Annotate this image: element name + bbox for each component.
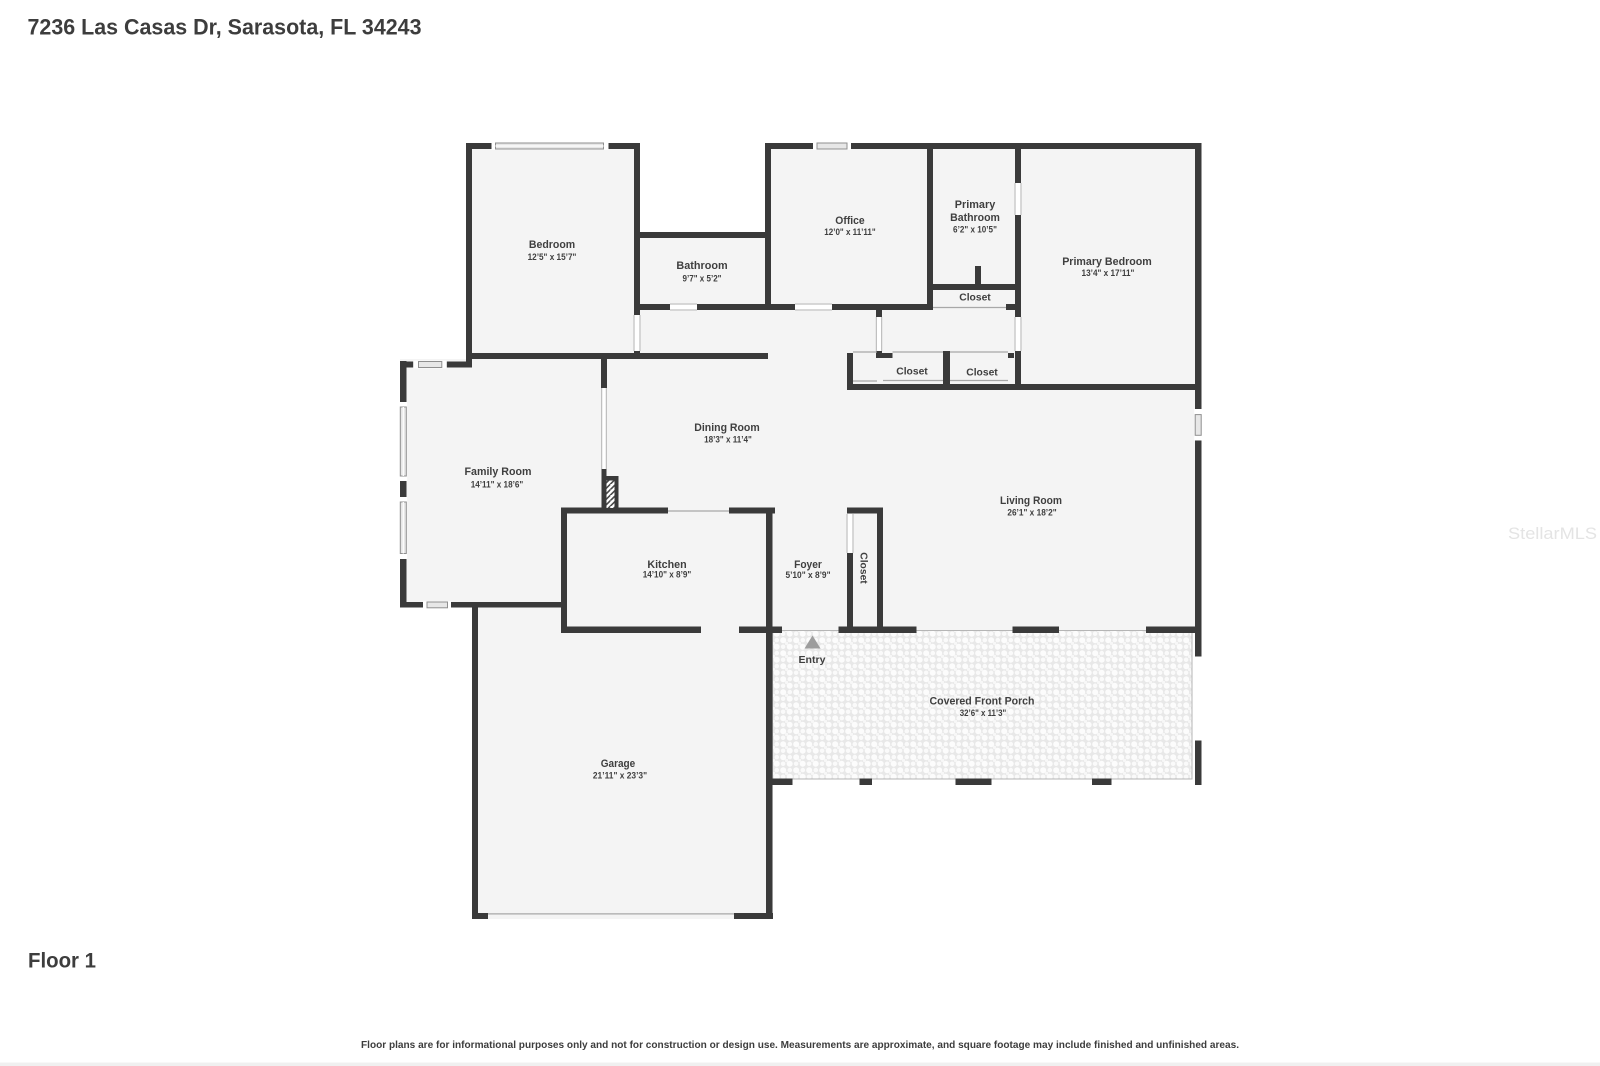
svg-text:Primary: Primary (955, 199, 996, 211)
svg-text:14’11" x 18’6": 14’11" x 18’6" (471, 479, 524, 490)
svg-text:Bathroom: Bathroom (950, 212, 1000, 224)
svg-text:Bathroom: Bathroom (676, 260, 727, 272)
svg-text:Closet: Closet (858, 552, 869, 584)
svg-text:Closet: Closet (966, 367, 998, 378)
svg-text:Living Room: Living Room (1000, 495, 1062, 507)
svg-text:21’11" x 23’3": 21’11" x 23’3" (593, 770, 647, 781)
svg-text:Bedroom: Bedroom (529, 239, 576, 251)
svg-text:Dining Room: Dining Room (694, 422, 760, 434)
svg-text:32’6" x 11’3": 32’6" x 11’3" (960, 708, 1007, 719)
svg-text:26’1" x 18’2": 26’1" x 18’2" (1007, 507, 1056, 518)
svg-text:14’10" x 8’9": 14’10" x 8’9" (643, 569, 692, 580)
svg-text:7236 Las Casas Dr, Sarasota, F: 7236 Las Casas Dr, Sarasota, FL 34243 (28, 15, 422, 40)
svg-text:Office: Office (835, 215, 864, 227)
svg-text:Floor 1: Floor 1 (28, 949, 96, 973)
svg-text:12’0" x 11’11": 12’0" x 11’11" (824, 227, 875, 238)
svg-text:5’10" x 8’9": 5’10" x 8’9" (785, 570, 830, 581)
svg-text:18’3" x 11’4": 18’3" x 11’4" (704, 434, 752, 445)
svg-text:13’4" x 17’11": 13’4" x 17’11" (1082, 268, 1135, 279)
svg-text:9’7" x 5’2": 9’7" x 5’2" (683, 273, 722, 284)
svg-text:Closet: Closet (959, 292, 991, 303)
svg-text:StellarMLS: StellarMLS (1508, 525, 1597, 543)
svg-text:Floor plans are for informatio: Floor plans are for informational purpos… (361, 1039, 1239, 1051)
svg-text:Closet: Closet (896, 366, 928, 377)
svg-text:Family Room: Family Room (465, 466, 532, 478)
svg-text:Entry: Entry (799, 655, 827, 666)
svg-text:Garage: Garage (601, 758, 636, 770)
svg-text:6’2" x 10’5": 6’2" x 10’5" (953, 224, 997, 235)
svg-text:12’5" x 15’7": 12’5" x 15’7" (528, 252, 577, 263)
svg-text:Covered Front Porch: Covered Front Porch (930, 695, 1035, 707)
svg-text:Primary Bedroom: Primary Bedroom (1062, 256, 1152, 268)
